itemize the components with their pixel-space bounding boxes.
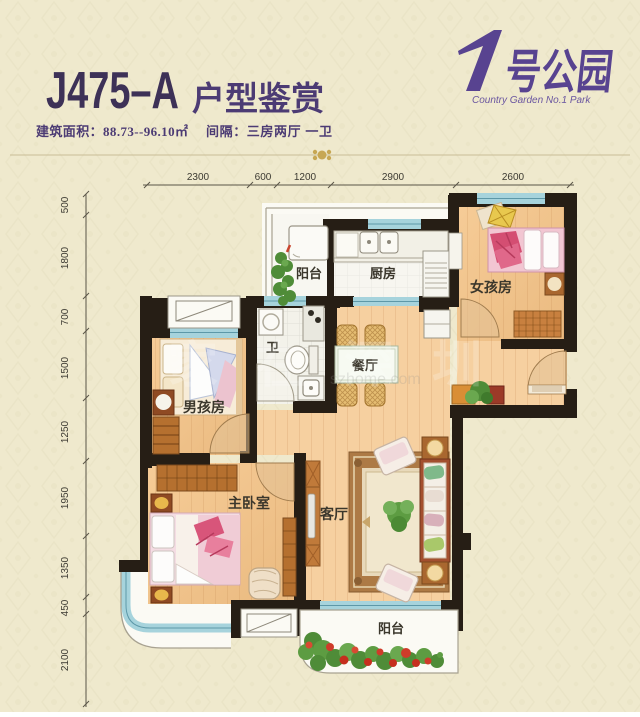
svg-text:1200: 1200 xyxy=(294,172,317,183)
svg-text:1350: 1350 xyxy=(60,556,71,579)
svg-text:2600: 2600 xyxy=(502,172,525,183)
svg-text:阳台: 阳台 xyxy=(296,266,322,281)
svg-text:建筑面积：88.73--96.10㎡: 建筑面积：88.73--96.10㎡ xyxy=(36,124,188,139)
svg-text:厨房: 厨房 xyxy=(370,266,396,281)
svg-text:450: 450 xyxy=(60,599,71,616)
svg-text:1800: 1800 xyxy=(60,246,71,269)
svg-text:女孩房: 女孩房 xyxy=(470,279,512,295)
svg-text:2900: 2900 xyxy=(382,172,405,183)
svg-text:700: 700 xyxy=(60,308,71,325)
svg-text:1500: 1500 xyxy=(60,356,71,379)
svg-text:2100: 2100 xyxy=(60,648,71,671)
svg-text:szhome.com: szhome.com xyxy=(330,371,421,388)
svg-text:Country Garden No.1 Park: Country Garden No.1 Park xyxy=(472,95,591,106)
svg-text:间隔：三房两厅 一卫: 间隔：三房两厅 一卫 xyxy=(206,124,333,139)
svg-text:600: 600 xyxy=(255,172,272,183)
svg-text:J475–A: J475–A xyxy=(46,61,179,119)
svg-text:1250: 1250 xyxy=(60,420,71,443)
svg-text:2300: 2300 xyxy=(187,172,210,183)
svg-text:号公园: 号公园 xyxy=(503,45,616,98)
svg-text:主卧室: 主卧室 xyxy=(228,495,270,511)
svg-text:户型鉴赏: 户型鉴赏 xyxy=(192,80,324,117)
svg-text:阳台: 阳台 xyxy=(378,621,404,636)
svg-text:1950: 1950 xyxy=(60,486,71,509)
svg-text:男孩房: 男孩房 xyxy=(183,399,225,415)
svg-text:客厅: 客厅 xyxy=(319,506,348,522)
svg-text:500: 500 xyxy=(60,196,71,213)
